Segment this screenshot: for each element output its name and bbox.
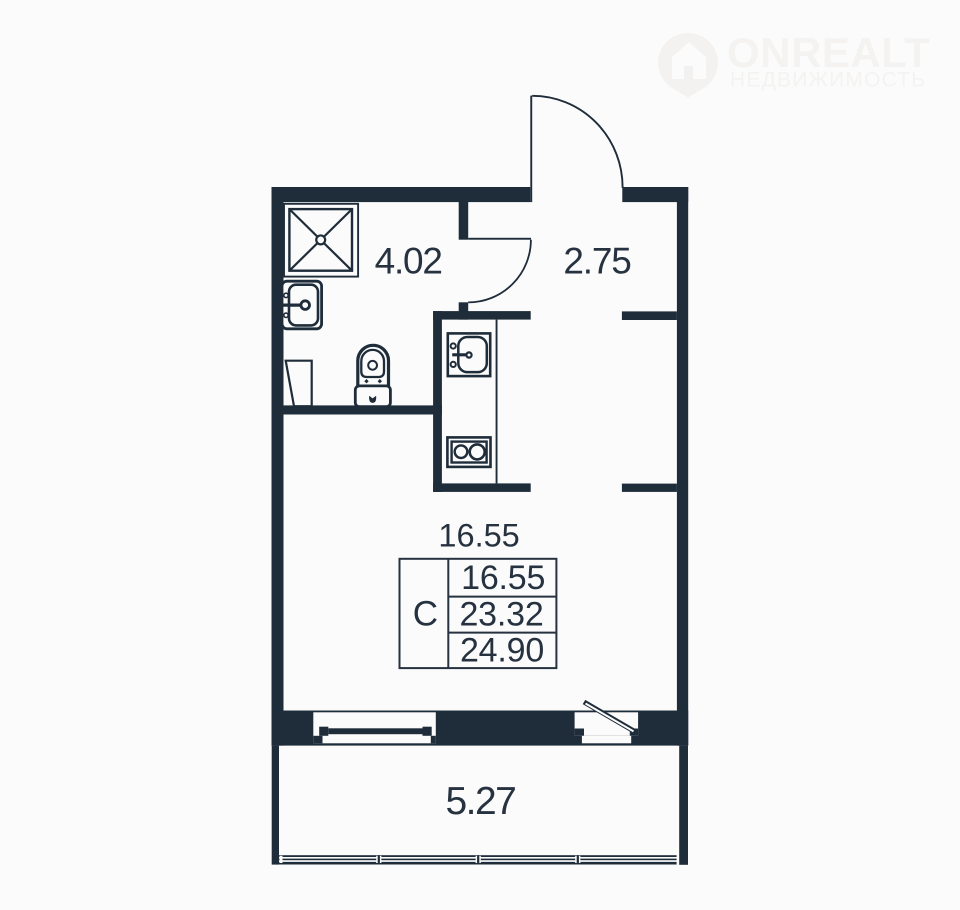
svg-text:НЕДВИЖИМОСТЬ: НЕДВИЖИМОСТЬ — [730, 69, 926, 92]
svg-text:24.90: 24.90 — [460, 631, 544, 669]
svg-text:5.27: 5.27 — [445, 780, 515, 823]
svg-text:2.75: 2.75 — [563, 240, 631, 281]
svg-text:23.32: 23.32 — [459, 596, 543, 634]
svg-text:4.02: 4.02 — [375, 240, 442, 281]
svg-text:16.55: 16.55 — [461, 559, 545, 597]
svg-text:C: C — [413, 595, 438, 634]
svg-text:16.55: 16.55 — [438, 518, 519, 554]
